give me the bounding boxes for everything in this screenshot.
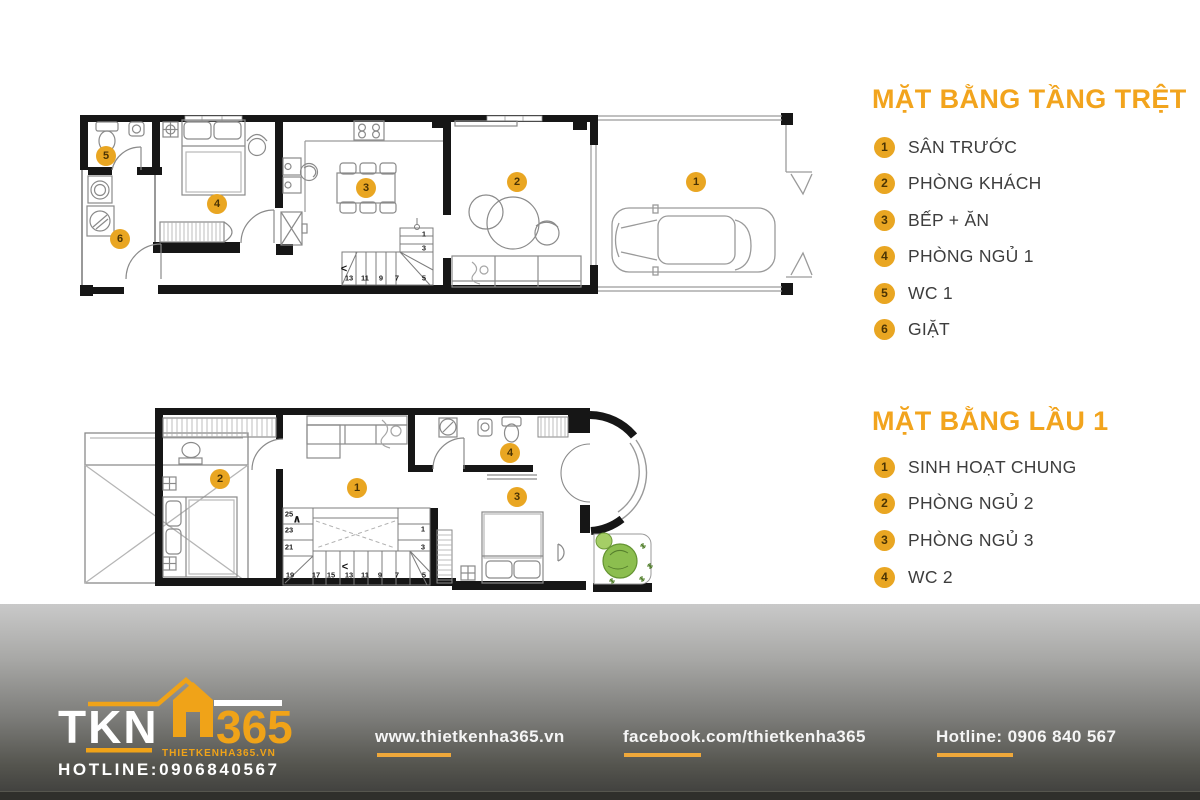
logo-tkn-text: TKN — [58, 701, 159, 753]
room-marker-4: 4 — [500, 443, 520, 463]
stair-direction-arrow: ∧ — [293, 513, 302, 526]
legend-item-label: PHÒNG KHÁCH — [908, 173, 1042, 194]
stair-step-number: 5 — [422, 571, 426, 580]
legend-item: 1SINH HOẠT CHUNG — [874, 449, 1077, 485]
legend-item-number: 3 — [874, 210, 895, 231]
room-marker-6: 6 — [110, 229, 130, 249]
legend-item-label: PHÒNG NGỦ 1 — [908, 246, 1034, 267]
poster-canvas: 123456135791113<123425232119171513119753… — [0, 0, 1200, 800]
legend-item: 4WC 2 — [874, 560, 953, 596]
stair-step-number: 11 — [361, 274, 369, 283]
legend-item-label: PHÒNG NGỦ 3 — [908, 530, 1034, 551]
logo-house-icon — [173, 682, 213, 737]
room-marker-1: 1 — [347, 478, 367, 498]
stair-step-number: 3 — [422, 244, 426, 253]
website-underline — [377, 753, 451, 757]
stair-step-number: 1 — [421, 525, 425, 534]
legend-item: 5WC 1 — [874, 275, 953, 311]
stair-step-number: 7 — [395, 274, 399, 283]
legend-item: 3BẾP + ĂN — [874, 202, 989, 238]
logo-365-text: 365 — [216, 701, 293, 753]
legend-item-number: 4 — [874, 246, 895, 267]
legend-item-label: SINH HOẠT CHUNG — [908, 457, 1077, 478]
legend-item-number: 3 — [874, 530, 895, 551]
legend-item-number: 2 — [874, 173, 895, 194]
stair-step-number: 17 — [312, 571, 320, 580]
facebook-link: facebook.com/thietkenha365 — [623, 727, 866, 747]
logo-site-text: THIETKENHA365.VN — [162, 748, 276, 759]
legend-item-number: 6 — [874, 319, 895, 340]
legend-item: 1SÂN TRƯỚC — [874, 129, 1017, 165]
legend-item-number: 2 — [874, 493, 895, 514]
logo-hotline-text: HOTLINE:0906840567 — [58, 760, 280, 779]
stair-direction-arrow: < — [341, 263, 347, 275]
tkn365-logo: TKN 365 THIETKENHA365.VN HOTLINE:0906840… — [52, 666, 302, 781]
room-marker-3: 3 — [507, 487, 527, 507]
footer-bottom-strip — [0, 791, 1200, 800]
legend-item-label: PHÒNG NGỦ 2 — [908, 493, 1034, 514]
hotline-text: Hotline: 0906 840 567 — [936, 727, 1116, 747]
legend-item: 2PHÒNG NGỦ 2 — [874, 486, 1034, 522]
legend-item: 3PHÒNG NGỦ 3 — [874, 523, 1034, 559]
stair-step-number: 7 — [395, 571, 399, 580]
legend-item-label: WC 1 — [908, 283, 953, 304]
legend-item-label: BẾP + ĂN — [908, 210, 989, 231]
stair-step-number: 5 — [422, 274, 426, 283]
legend-item-label: WC 2 — [908, 567, 953, 588]
website-link: www.thietkenha365.vn — [375, 727, 565, 747]
room-marker-2: 2 — [507, 172, 527, 192]
stair-step-number: 9 — [378, 571, 382, 580]
stair-step-number: 1 — [422, 230, 426, 239]
room-marker-4: 4 — [207, 194, 227, 214]
room-marker-3: 3 — [356, 178, 376, 198]
legend-item-number: 4 — [874, 567, 895, 588]
hotline-underline — [937, 753, 1013, 757]
stair-step-number: 9 — [379, 274, 383, 283]
legend-item: 6GIẶT — [874, 312, 950, 348]
facebook-underline — [624, 753, 701, 757]
room-marker-2: 2 — [210, 469, 230, 489]
legend-item-number: 5 — [874, 283, 895, 304]
stair-step-number: 19 — [286, 571, 294, 580]
room-marker-5: 5 — [96, 146, 116, 166]
legend-item-label: GIẶT — [908, 319, 950, 340]
stair-direction-arrow: < — [342, 561, 348, 573]
legend-item-number: 1 — [874, 137, 895, 158]
ground-floor-legend-title: MẶT BẰNG TẦNG TRỆT — [872, 84, 1200, 115]
first-floor-legend-title: MẶT BẰNG LẦU 1 — [872, 406, 1200, 437]
legend-item-number: 1 — [874, 457, 895, 478]
legend-item: 2PHÒNG KHÁCH — [874, 166, 1042, 202]
stair-step-number: 11 — [361, 571, 369, 580]
stair-step-number: 15 — [327, 571, 335, 580]
stair-step-number: 21 — [285, 543, 293, 552]
room-marker-1: 1 — [686, 172, 706, 192]
legend-item: 4PHÒNG NGỦ 1 — [874, 239, 1034, 275]
stair-step-number: 3 — [421, 543, 425, 552]
legend-item-label: SÂN TRƯỚC — [908, 137, 1017, 158]
stair-step-number: 23 — [285, 526, 293, 535]
